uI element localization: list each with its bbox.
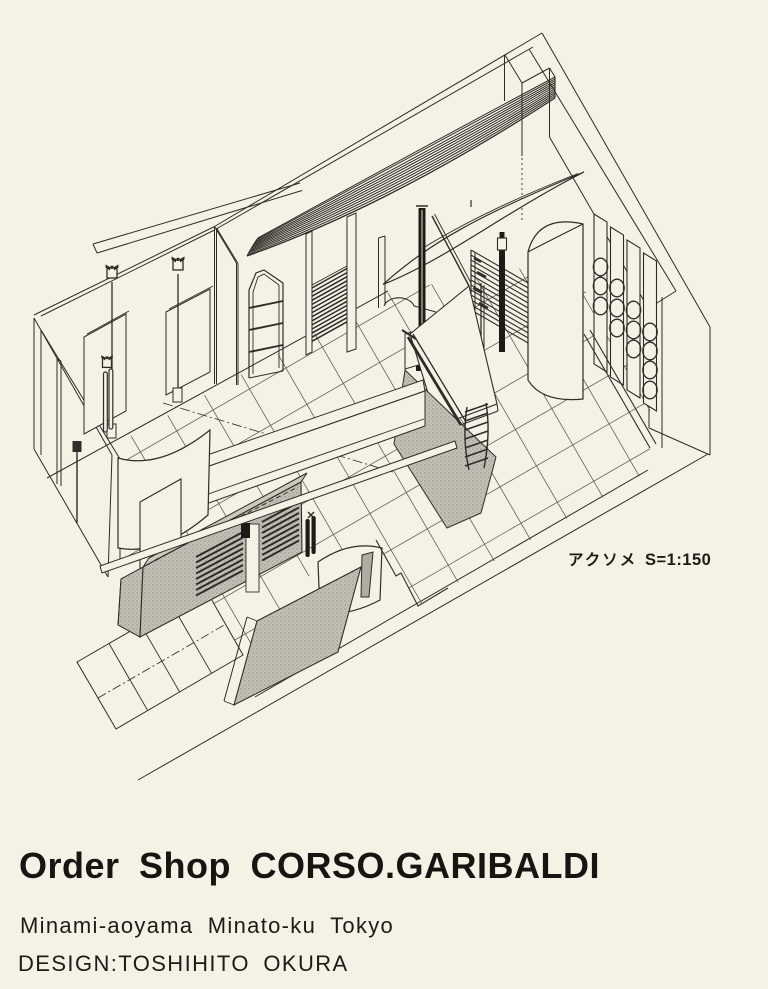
svg-text:アクソメ: アクソメ [568, 551, 637, 569]
svg-text:S=1:150: S=1:150 [645, 551, 711, 569]
